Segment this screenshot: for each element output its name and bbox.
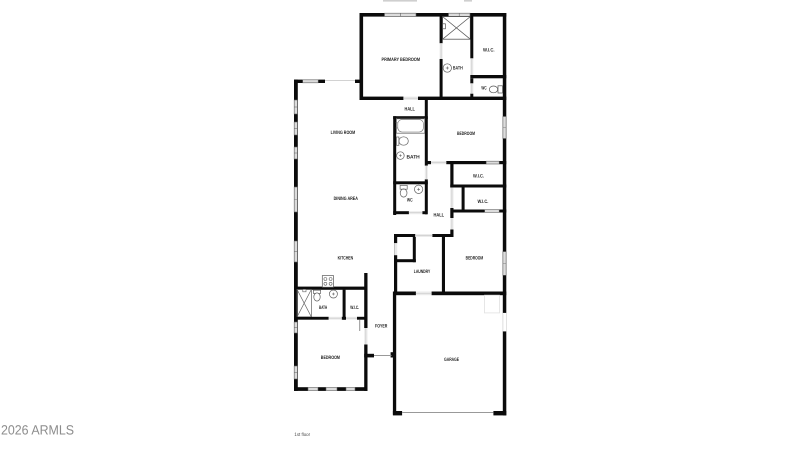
svg-text:BEDROOM: BEDROOM [457,131,475,137]
svg-text:KITCHEN: KITCHEN [338,256,354,262]
svg-text:BEDROOM: BEDROOM [466,256,484,262]
svg-text:LIVING ROOM: LIVING ROOM [331,130,356,136]
svg-text:GARAGE: GARAGE [444,357,459,363]
svg-text:HALL: HALL [434,212,445,218]
svg-text:LAUNDRY: LAUNDRY [414,269,431,275]
svg-text:BATH: BATH [407,155,421,161]
svg-text:W.I.C.: W.I.C. [477,199,488,205]
svg-text:WC: WC [407,198,413,204]
svg-text:BATH: BATH [453,66,463,72]
svg-text:BEDROOM: BEDROOM [321,355,340,361]
svg-text:HALL: HALL [405,106,415,112]
svg-text:W.I.C.: W.I.C. [473,173,485,179]
svg-text:2026 ARMLS: 2026 ARMLS [1,423,74,438]
svg-text:1st floor: 1st floor [294,432,310,438]
svg-text:W.I.C.: W.I.C. [483,48,495,54]
svg-text:DINING AREA: DINING AREA [334,196,359,202]
svg-text:W.I.C.: W.I.C. [350,305,359,311]
svg-text:FOYER: FOYER [375,324,388,330]
svg-text:PRIMARY BEDROOM: PRIMARY BEDROOM [382,57,421,63]
svg-text:WC: WC [481,86,486,92]
svg-text:BATH: BATH [319,305,327,311]
